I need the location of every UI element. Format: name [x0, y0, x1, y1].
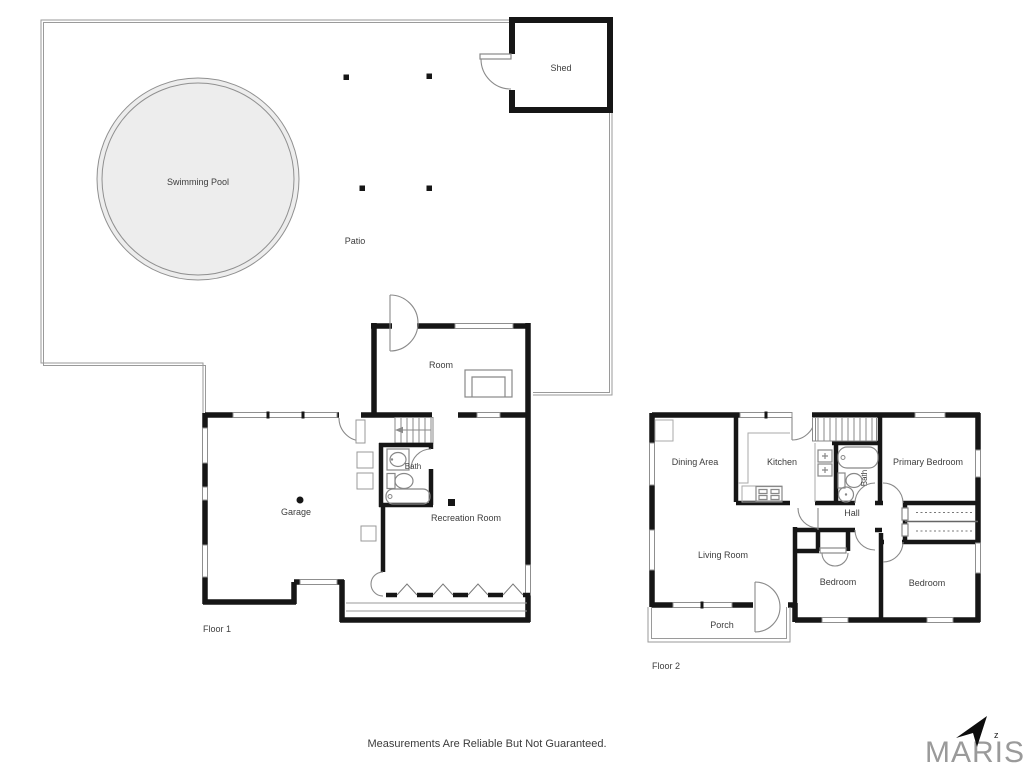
window	[233, 413, 337, 418]
floor1-plan: Room Bath Garage	[203, 295, 531, 634]
maris-logo-text: MARIS	[925, 736, 1024, 768]
window	[526, 565, 531, 595]
window	[650, 443, 655, 485]
dining-area-label: Dining Area	[672, 457, 719, 467]
window	[650, 530, 655, 570]
kitchen-counters	[738, 433, 832, 502]
hall-closets	[902, 508, 978, 536]
room-label: Room	[429, 360, 453, 370]
living-room-label: Living Room	[698, 550, 748, 560]
garage-storage	[356, 420, 376, 541]
closet-door-arc	[822, 553, 848, 566]
shed-door-panel	[480, 54, 511, 59]
patio-posts	[344, 74, 433, 192]
kitchen-label: Kitchen	[767, 457, 797, 467]
patio-label: Patio	[345, 236, 366, 246]
sink-icon	[839, 487, 854, 502]
garage-label: Garage	[281, 507, 311, 517]
post-icon	[427, 74, 433, 80]
window	[203, 487, 208, 500]
garage-post-icon	[297, 497, 304, 504]
post-icon	[360, 186, 366, 192]
bath-label: Bath	[405, 462, 421, 471]
kitchen-backdoor-arc	[792, 417, 815, 440]
stairs-floor1	[395, 418, 433, 444]
swimming-pool-label: Swimming Pool	[167, 177, 229, 187]
closet-door-panel	[902, 508, 908, 520]
dining-closet	[655, 420, 673, 441]
window	[477, 413, 500, 418]
hall-label: Hall	[844, 508, 860, 518]
step-edge	[346, 603, 527, 611]
toilet-icon	[387, 474, 413, 489]
stairs-floor2	[813, 418, 877, 442]
window	[822, 618, 848, 623]
primary-bedroom-label: Primary Bedroom	[893, 457, 963, 467]
window	[203, 545, 208, 577]
floor1-title: Floor 1	[203, 624, 231, 634]
bath-floor2: Bath	[838, 447, 878, 502]
disclaimer-text: Measurements Are Reliable But Not Guaran…	[367, 738, 606, 750]
window	[976, 543, 981, 573]
post-icon	[344, 75, 350, 81]
shed-label: Shed	[550, 63, 571, 73]
recreation-room-label: Recreation Room	[431, 513, 501, 523]
bedroom1-door-arc	[855, 530, 875, 550]
closet-door-panel	[902, 524, 908, 536]
window	[976, 450, 981, 477]
bathtub-icon	[838, 447, 878, 468]
closet-door-panel	[820, 548, 846, 553]
window	[915, 413, 945, 418]
room-door	[390, 295, 418, 351]
toilet-icon	[838, 473, 862, 488]
shed: Shed	[480, 20, 610, 110]
window	[455, 324, 513, 329]
floor2-title: Floor 2	[652, 661, 680, 671]
maris-logo: MARIS z	[925, 716, 1024, 768]
window	[203, 428, 208, 463]
floorplan-canvas: Swimming Pool Patio Shed	[0, 0, 1024, 768]
folding-doors	[386, 584, 530, 595]
rec-post-icon	[448, 499, 455, 506]
floorplan-image: Swimming Pool Patio Shed	[0, 0, 1024, 768]
bedroom2-door-arc	[883, 542, 903, 562]
stove-icon	[756, 487, 782, 502]
bedroom-middle-label: Bedroom	[820, 577, 857, 587]
bath-floor1: Bath	[379, 443, 433, 507]
rec-door-arc	[371, 572, 383, 596]
primary-door-arc	[883, 483, 903, 503]
porch-door	[755, 582, 780, 632]
living-door-arc	[798, 508, 818, 530]
porch-label: Porch	[710, 620, 734, 630]
post-icon	[427, 186, 433, 192]
floor2-plan: Dining Area Kitchen	[648, 412, 981, 672]
window	[300, 580, 337, 585]
north-letter: z	[994, 730, 999, 740]
fireplace	[465, 370, 512, 397]
bedroom-right-label: Bedroom	[909, 578, 946, 588]
window	[927, 618, 953, 623]
bathtub-icon	[386, 489, 430, 504]
